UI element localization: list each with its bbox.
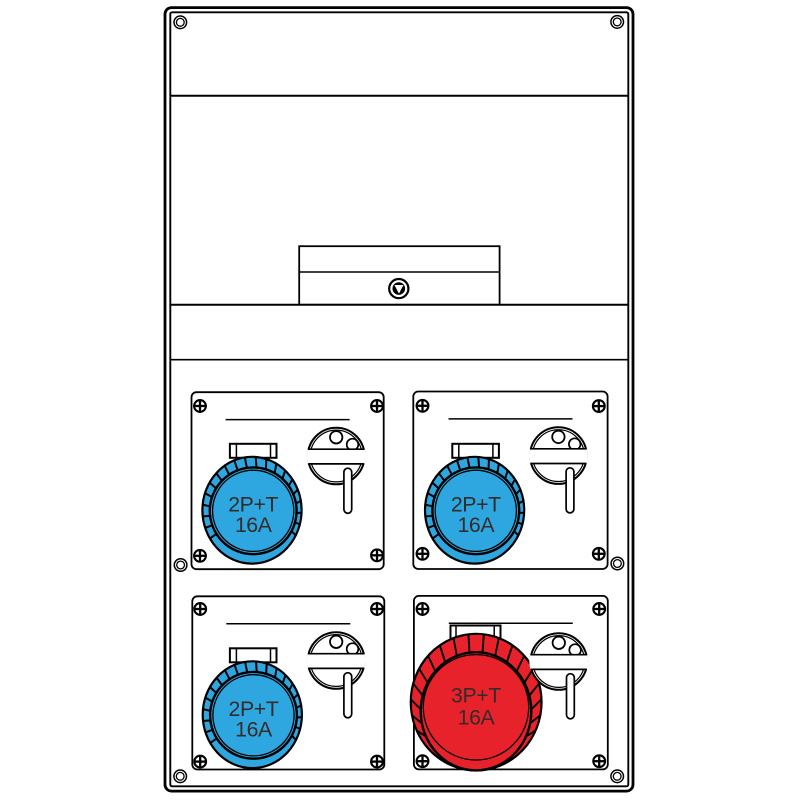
svg-text:16A: 16A — [235, 513, 273, 537]
svg-text:3P+T: 3P+T — [451, 684, 501, 708]
svg-text:16A: 16A — [458, 706, 496, 730]
svg-text:16A: 16A — [235, 718, 273, 742]
svg-text:16A: 16A — [457, 513, 495, 537]
